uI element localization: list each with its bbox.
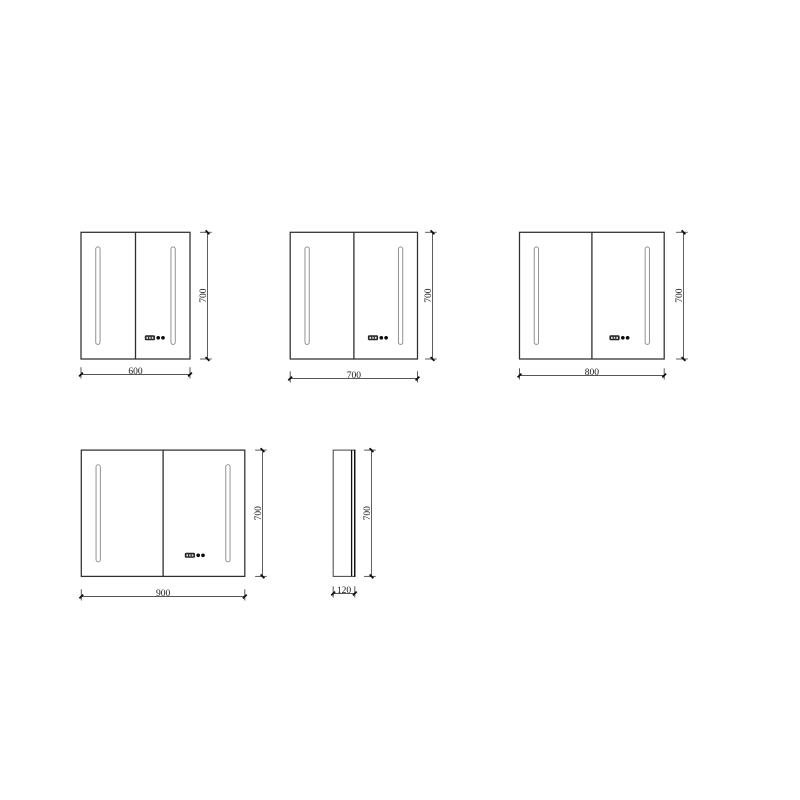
- svg-text:900: 900: [156, 589, 171, 599]
- svg-text:700: 700: [254, 506, 264, 521]
- svg-text:700: 700: [363, 506, 373, 521]
- svg-text:600: 600: [128, 367, 143, 377]
- svg-text:120: 120: [337, 586, 352, 596]
- svg-text:700: 700: [675, 288, 685, 303]
- svg-text:700: 700: [347, 371, 362, 381]
- svg-text:700: 700: [424, 288, 434, 303]
- svg-text:800: 800: [585, 368, 600, 378]
- svg-text:700: 700: [199, 288, 209, 303]
